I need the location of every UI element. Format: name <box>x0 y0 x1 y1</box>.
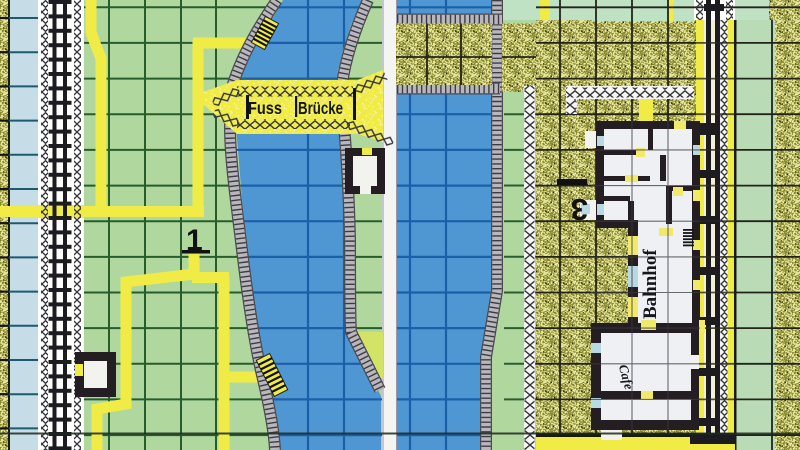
svg-text:Brücke: Brücke <box>298 98 343 118</box>
svg-text:Bahnhof: Bahnhof <box>640 249 661 319</box>
svg-text:3: 3 <box>571 192 588 227</box>
svg-text:Fuss: Fuss <box>248 98 282 118</box>
